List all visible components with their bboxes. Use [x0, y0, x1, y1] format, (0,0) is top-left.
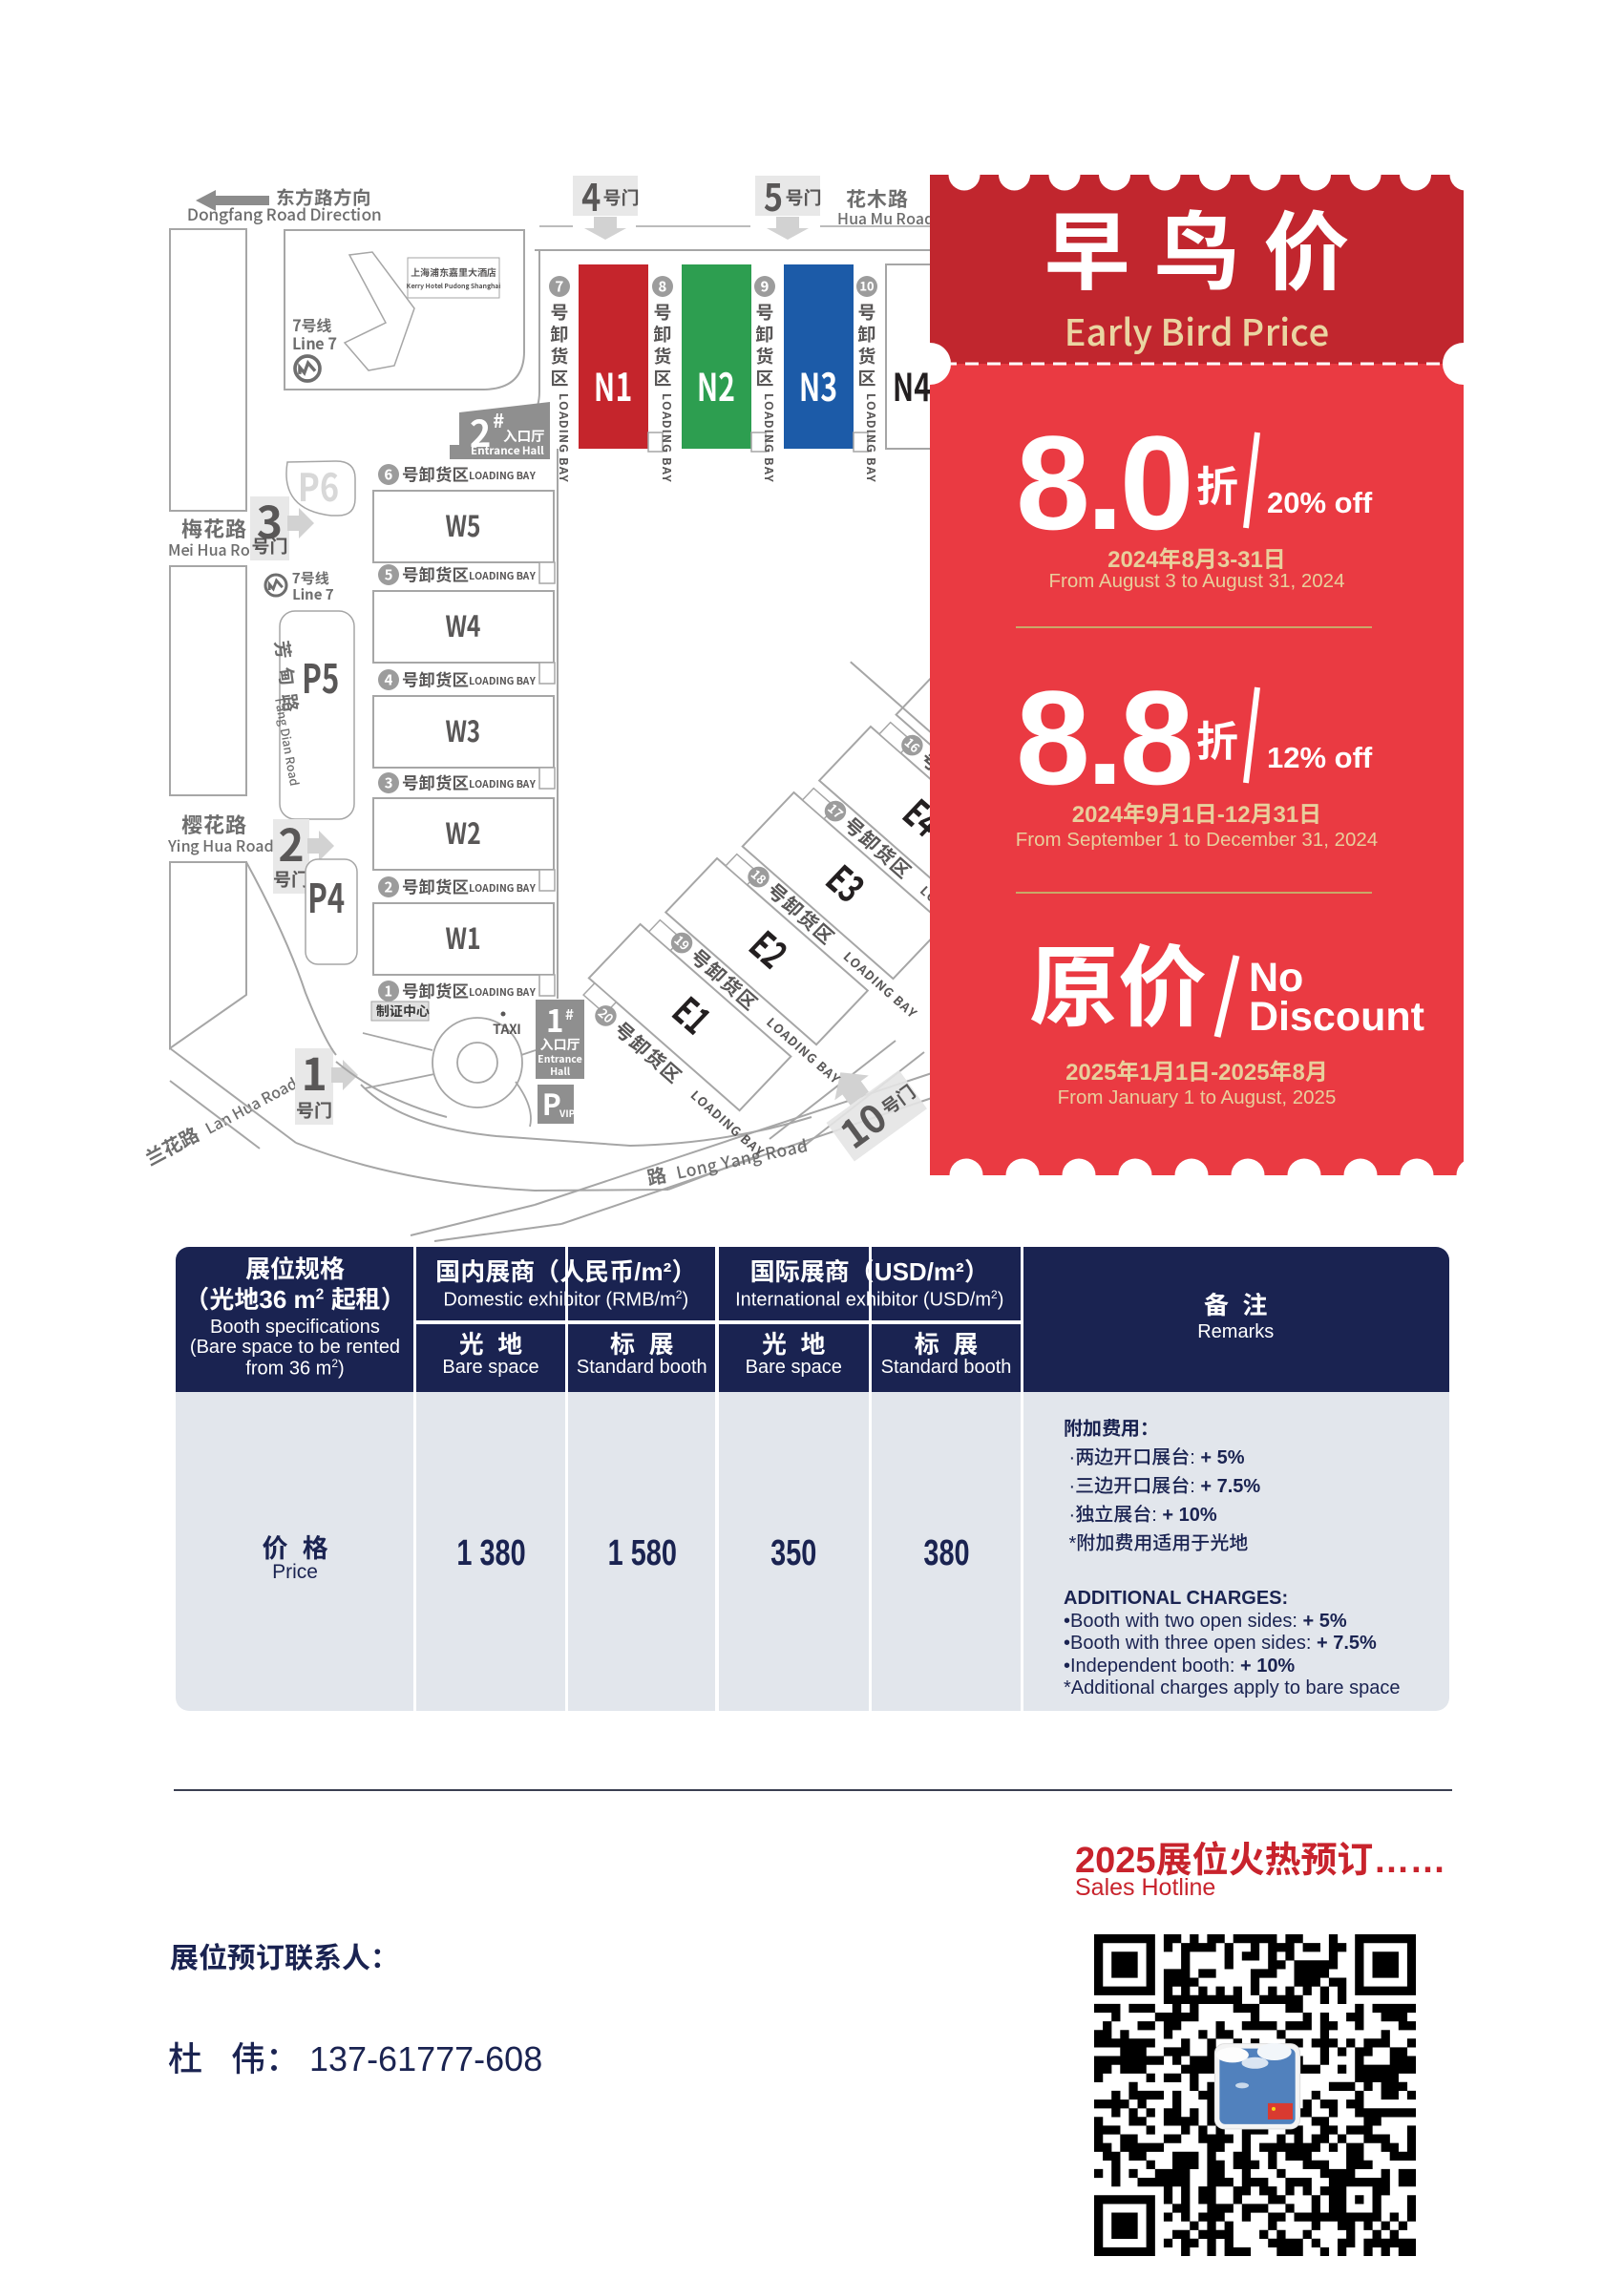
- svg-text:P: P: [542, 1082, 561, 1124]
- svg-text:VIP: VIP: [559, 1106, 575, 1120]
- svg-text:号门: 号门: [251, 533, 287, 559]
- svg-text:10: 10: [859, 277, 875, 295]
- svg-text:LOADING BAY: LOADING BAY: [761, 393, 779, 483]
- svg-text:LOADING BAY: LOADING BAY: [469, 985, 536, 1000]
- svg-text:路: 路: [644, 1160, 669, 1192]
- svg-text:Hua Mu Road: Hua Mu Road: [837, 206, 934, 229]
- svg-text:号卸货区: 号卸货区: [402, 563, 469, 587]
- svg-text:W4: W4: [446, 603, 481, 645]
- svg-text:号门: 号门: [273, 866, 309, 892]
- svg-text:号卸货区: 号卸货区: [402, 980, 469, 1003]
- svg-text:TAXI: TAXI: [493, 1019, 521, 1038]
- svg-text:号卸货区: 号卸货区: [402, 771, 469, 795]
- svg-text:LOADING BAY: LOADING BAY: [469, 469, 536, 483]
- svg-text:Lan Hua Road: Lan Hua Road: [200, 1071, 301, 1139]
- svg-text:Ying Hua Road: Ying Hua Road: [167, 833, 273, 856]
- svg-text:W1: W1: [446, 916, 481, 958]
- svg-text:LOADING BAY: LOADING BAY: [863, 393, 881, 483]
- svg-text:N2: N2: [697, 357, 735, 412]
- svg-text:兰花路: 兰花路: [139, 1120, 203, 1171]
- svg-text:W5: W5: [446, 503, 481, 545]
- svg-text:Dongfang Road Direction: Dongfang Road Direction: [187, 201, 381, 225]
- svg-text:1: 1: [301, 1041, 327, 1104]
- svg-text:5: 5: [384, 564, 393, 584]
- svg-text:N3: N3: [799, 357, 837, 412]
- svg-text:Line 7: Line 7: [292, 331, 337, 354]
- svg-text:9: 9: [761, 276, 770, 296]
- svg-text:1: 1: [385, 981, 393, 1001]
- svg-text:号门: 号门: [785, 184, 821, 210]
- svg-text:LOADING BAY: LOADING BAY: [469, 777, 536, 791]
- svg-text:4: 4: [581, 169, 601, 222]
- svg-text:制证中心: 制证中心: [375, 1002, 430, 1021]
- svg-text:P6: P6: [298, 457, 339, 513]
- svg-text:Hall: Hall: [550, 1065, 570, 1079]
- svg-text:区: 区: [857, 365, 875, 390]
- svg-text:P5: P5: [302, 647, 339, 706]
- svg-text:号门: 号门: [602, 184, 639, 210]
- svg-text:LOADING BAY: LOADING BAY: [469, 674, 536, 688]
- svg-text:#: #: [565, 1004, 574, 1024]
- svg-text:N1: N1: [594, 357, 632, 412]
- svg-text:区: 区: [550, 365, 568, 390]
- svg-text:号卸货区: 号卸货区: [402, 875, 469, 899]
- svg-text:N4: N4: [893, 357, 931, 412]
- svg-text:入口厅: 入口厅: [540, 1035, 580, 1054]
- svg-text:Kerry Hotel Pudong Shanghai: Kerry Hotel Pudong Shanghai: [407, 281, 501, 290]
- svg-text:LOADING BAY: LOADING BAY: [469, 881, 536, 896]
- svg-text:区: 区: [755, 365, 773, 390]
- svg-text:P4: P4: [307, 867, 345, 925]
- svg-text:5: 5: [764, 169, 783, 222]
- svg-text:区: 区: [653, 365, 671, 390]
- svg-text:8: 8: [659, 276, 667, 296]
- svg-text:6: 6: [385, 464, 393, 484]
- svg-text:LOADING BAY: LOADING BAY: [659, 393, 677, 483]
- svg-text:LOADING BAY: LOADING BAY: [469, 569, 536, 583]
- svg-text:4: 4: [385, 669, 394, 689]
- svg-text:号门: 号门: [296, 1097, 332, 1123]
- svg-text:3: 3: [385, 772, 393, 792]
- svg-text:2: 2: [385, 876, 393, 896]
- svg-text:W3: W3: [446, 708, 481, 750]
- svg-text:Line 7: Line 7: [292, 584, 334, 604]
- svg-text:7: 7: [556, 276, 564, 296]
- svg-text:号卸货区: 号卸货区: [402, 668, 469, 692]
- svg-text:W2: W2: [446, 811, 481, 853]
- svg-text:号卸货区: 号卸货区: [402, 463, 469, 487]
- svg-text:Entrance Hall: Entrance Hall: [471, 443, 544, 458]
- svg-text:上海浦东嘉里大酒店: 上海浦东嘉里大酒店: [411, 264, 496, 279]
